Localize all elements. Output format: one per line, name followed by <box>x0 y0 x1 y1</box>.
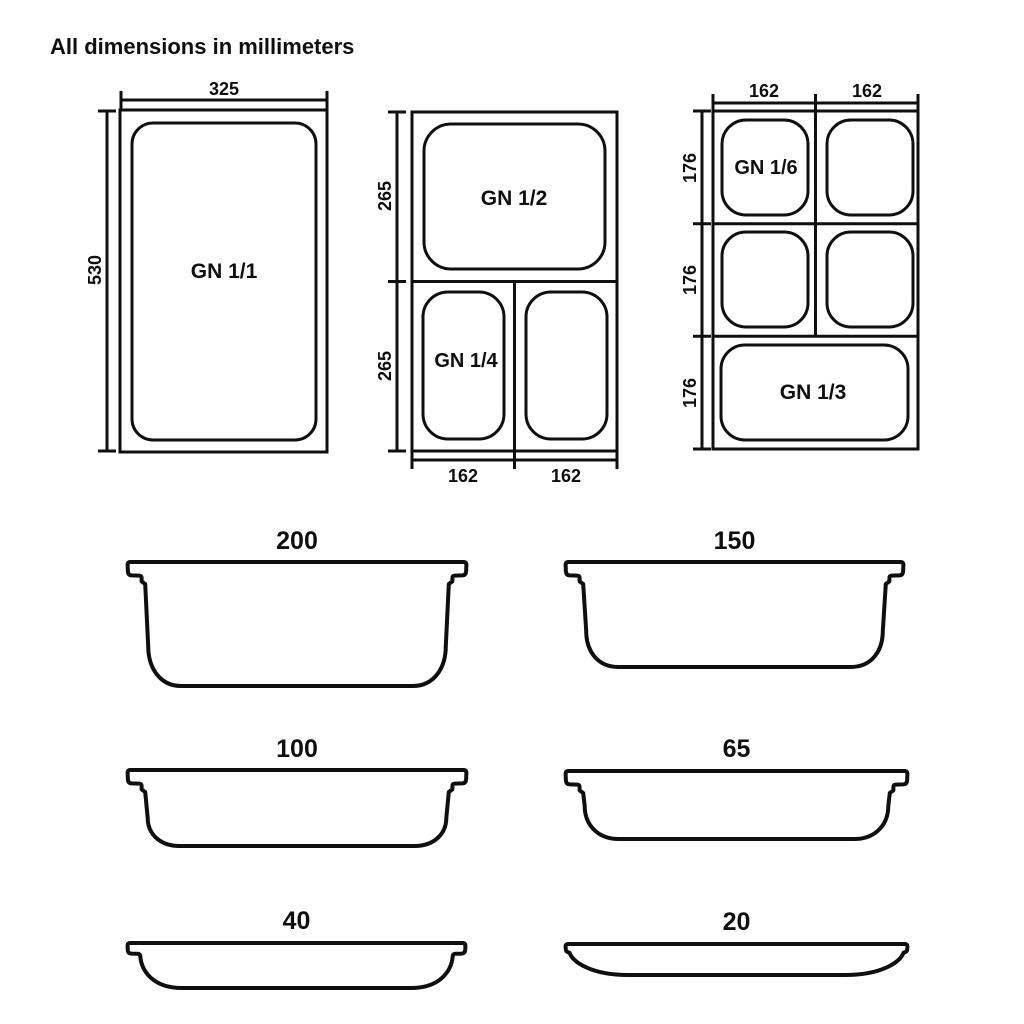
height-row3-label: 176 <box>680 378 700 408</box>
gn16-inner-rect-unlabeled <box>827 232 913 327</box>
gn13-size-label: GN 1/3 <box>780 381 847 404</box>
pan-profile-outline <box>128 562 467 686</box>
gn12-size-label: GN 1/2 <box>481 187 548 210</box>
width-right-label: 162 <box>852 81 882 101</box>
profile-view-depth-100: 100 <box>128 735 467 846</box>
width-right-label: 162 <box>551 466 581 486</box>
pan-profile-outline <box>566 562 904 667</box>
top-view-gn16-gn13: 162 162 176 176 176 GN 1/6 GN 1/3 <box>680 81 918 449</box>
height-dimension: 176 176 176 <box>680 111 711 449</box>
pan-profile-outline <box>566 771 908 839</box>
depth-label: 150 <box>714 527 756 555</box>
depth-label: 65 <box>723 735 751 763</box>
depth-label: 200 <box>276 527 318 555</box>
depth-label: 100 <box>276 735 318 763</box>
width-dimension: 162 162 <box>412 451 617 486</box>
pan-profile-outline <box>128 943 466 988</box>
width-dimension: 325 <box>121 79 327 109</box>
height-top-label: 265 <box>375 181 395 211</box>
gn16-inner-rect-unlabeled <box>722 232 808 327</box>
width-left-label: 162 <box>749 81 779 101</box>
height-row2-label: 176 <box>680 265 700 295</box>
gn14-size-label: GN 1/4 <box>434 350 498 372</box>
technical-drawing-canvas: All dimensions in millimeters 325 530 GN… <box>0 0 1024 1024</box>
height-bottom-label: 265 <box>375 351 395 381</box>
width-left-label: 162 <box>448 466 478 486</box>
height-row1-label: 176 <box>680 153 700 183</box>
profile-view-depth-20: 20 <box>566 908 908 975</box>
profile-view-depth-65: 65 <box>566 735 908 839</box>
height-dimension-label: 530 <box>85 255 105 285</box>
gn14-inner-rect-unlabeled <box>526 292 607 439</box>
depth-label: 40 <box>283 907 311 935</box>
height-dimension: 265 265 <box>375 112 406 451</box>
pan-profile-outline <box>566 944 908 975</box>
width-dimension: 162 162 <box>713 81 918 112</box>
depth-label: 20 <box>723 908 751 936</box>
profile-view-depth-150: 150 <box>566 527 904 667</box>
top-view-gn11: 325 530 GN 1/1 <box>85 79 327 452</box>
width-dimension-label: 325 <box>209 79 239 99</box>
profile-view-depth-40: 40 <box>128 907 466 988</box>
page-title: All dimensions in millimeters <box>50 34 354 59</box>
pan-size-label: GN 1/1 <box>191 260 258 283</box>
height-dimension: 530 <box>85 111 116 451</box>
gn16-size-label: GN 1/6 <box>734 157 797 179</box>
gn16-inner-rect-unlabeled <box>827 120 913 215</box>
profile-view-depth-200: 200 <box>128 527 467 686</box>
pan-profile-outline <box>128 770 467 846</box>
top-view-gn12-gn14: 265 265 162 162 GN 1/2 GN 1/4 <box>375 112 617 486</box>
